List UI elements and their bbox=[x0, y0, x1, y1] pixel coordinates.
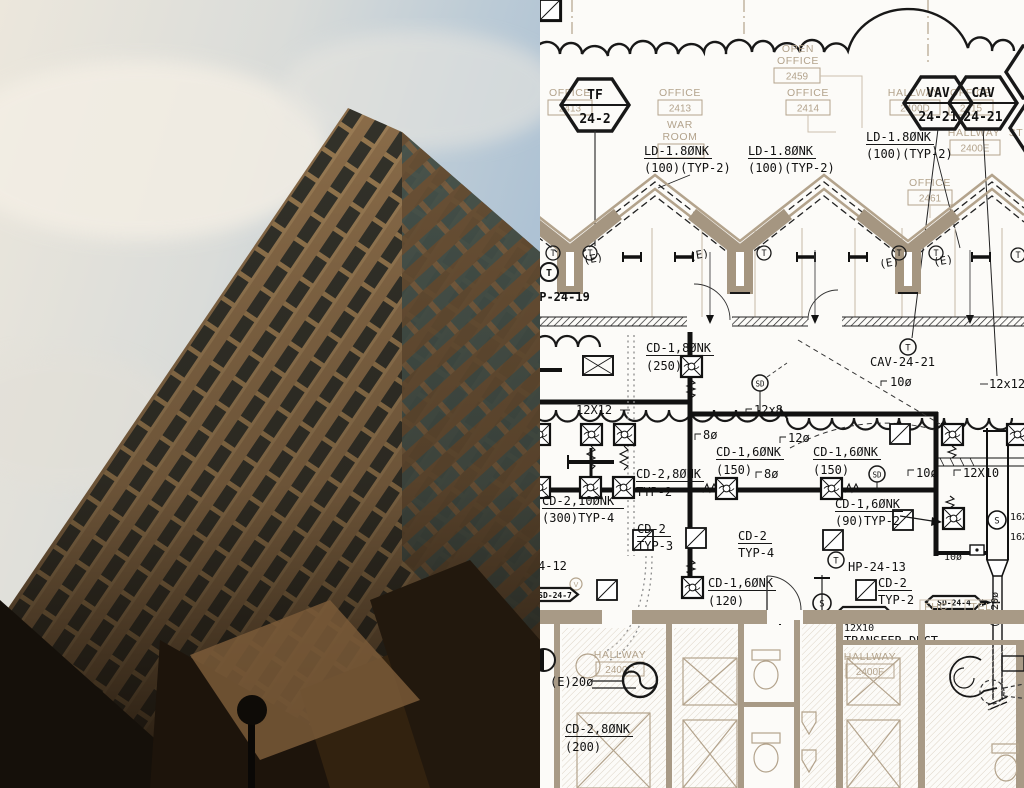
size-12x8: 12x8 bbox=[754, 403, 783, 417]
svg-text:2400E: 2400E bbox=[961, 144, 990, 155]
svg-text:TYP-2: TYP-2 bbox=[636, 485, 672, 499]
svg-text:SD: SD bbox=[755, 380, 765, 389]
svg-text:T: T bbox=[550, 249, 555, 259]
svg-text:T: T bbox=[546, 268, 552, 279]
partitions bbox=[652, 228, 1002, 317]
cd2-t3-label: CD-2 bbox=[637, 522, 666, 536]
svg-text:(100)(TYP-2): (100)(TYP-2) bbox=[748, 161, 835, 175]
cd2-t4-label: CD-2 bbox=[738, 529, 767, 543]
screenshot: OPEN OFFICE 2459 OFFICE 2413 OFFICE 2413… bbox=[0, 0, 1024, 788]
svg-text:2400F: 2400F bbox=[856, 667, 884, 678]
svg-text:(150): (150) bbox=[716, 463, 752, 477]
size-12x10-a: 12X10 bbox=[963, 466, 999, 480]
room-hallway-2400c: HALLWAY bbox=[594, 649, 646, 661]
size-8-a: 8ø bbox=[703, 428, 717, 442]
lamp-head bbox=[237, 695, 267, 725]
svg-text:(120): (120) bbox=[708, 594, 744, 608]
svg-text:OFFICE: OFFICE bbox=[777, 55, 819, 67]
cd28-200-label: CD-2,8ØNK bbox=[565, 722, 631, 736]
revision-cloud-top bbox=[540, 9, 1014, 56]
svg-text:2413: 2413 bbox=[669, 104, 692, 115]
svg-text:(300)TYP-4: (300)TYP-4 bbox=[542, 511, 614, 525]
room-war-room: OFFICE bbox=[659, 87, 701, 99]
size-12x12: 12X12 bbox=[576, 403, 612, 417]
svg-text:CAV: CAV bbox=[971, 86, 995, 101]
svg-text:24-2: 24-2 bbox=[579, 112, 610, 127]
svg-text:(E): (E) bbox=[688, 247, 710, 263]
tag-cav: CAV 24-21 bbox=[949, 77, 1017, 129]
hvac-plan-drawing: OPEN OFFICE 2459 OFFICE 2413 OFFICE 2413… bbox=[540, 0, 1024, 788]
size-12x10-b: 12X10 bbox=[844, 623, 874, 634]
e20-horizontal: (E)20ø bbox=[550, 675, 593, 689]
cd2-t2-label: CD-2 bbox=[878, 576, 907, 590]
cd28-t2-label: CD-2,8ØNK bbox=[636, 467, 702, 481]
cd16-90-label: CD-1,6ØNK bbox=[835, 497, 901, 511]
svg-text:T: T bbox=[761, 249, 766, 259]
ld-label-1: LD-1.8ØNK bbox=[644, 144, 710, 158]
room-office-2414: OFFICE bbox=[787, 87, 829, 99]
size-16x-a: 16X bbox=[1010, 512, 1024, 523]
size-12x12-b: 12x12 bbox=[989, 377, 1024, 391]
svg-text:(E): (E) bbox=[932, 253, 954, 269]
size-10-b: 10ø bbox=[916, 466, 938, 480]
svg-text:T: T bbox=[833, 557, 839, 567]
partial-hp-label: 4-12 bbox=[540, 559, 567, 573]
svg-text:(100)(TYP-2): (100)(TYP-2) bbox=[644, 161, 731, 175]
svg-text:24-21: 24-21 bbox=[918, 110, 957, 125]
inline-fan-box bbox=[583, 356, 613, 375]
svg-text:TYP-4: TYP-4 bbox=[738, 546, 774, 560]
svg-text:TF: TF bbox=[587, 88, 603, 103]
hp-24-13-label: HP-24-13 bbox=[848, 560, 906, 574]
size-16x-b: 16X bbox=[1010, 532, 1024, 543]
hvac-plan-art: OPEN OFFICE 2459 OFFICE 2413 OFFICE 2413… bbox=[540, 0, 1024, 788]
size-10-c: 10ø bbox=[944, 552, 962, 563]
room-open-office: OPEN bbox=[782, 43, 814, 55]
svg-text:VAV: VAV bbox=[926, 86, 950, 101]
svg-text:S: S bbox=[819, 600, 824, 610]
svg-text:(90)TYP-2: (90)TYP-2 bbox=[835, 514, 900, 528]
svg-text:TYP-2: TYP-2 bbox=[878, 593, 914, 607]
room-hallway-2400f: HALLWAY bbox=[844, 651, 896, 663]
svg-text:V: V bbox=[574, 582, 579, 589]
svg-text:2459: 2459 bbox=[786, 72, 809, 83]
cd210-label: CD-2,10ØNK bbox=[542, 494, 615, 508]
grid-lines bbox=[572, 0, 928, 64]
building-photo bbox=[0, 0, 540, 788]
size-10-a: 10ø bbox=[890, 375, 912, 389]
svg-text:(200): (200) bbox=[565, 740, 601, 754]
cd16-150-right: CD-1,6ØNK bbox=[813, 445, 879, 459]
svg-text:(100)(TYP-2): (100)(TYP-2) bbox=[866, 147, 953, 161]
svg-text:2414: 2414 bbox=[797, 104, 820, 115]
size-8-b: 8ø bbox=[764, 467, 778, 481]
svg-text:TYP-3: TYP-3 bbox=[637, 539, 673, 553]
hp-24-19-label: HP-24-19 bbox=[540, 290, 590, 304]
corridor-wall bbox=[540, 284, 1024, 326]
svg-text:ROOM: ROOM bbox=[662, 131, 697, 143]
cd16-150-left: CD-1,6ØNK bbox=[716, 445, 782, 459]
svg-text:T: T bbox=[905, 344, 911, 354]
ld-label-3: LD-1.8ØNK bbox=[866, 130, 932, 144]
size-12: 12ø bbox=[788, 431, 810, 445]
cav-24-21-label: CAV-24-21 bbox=[870, 355, 935, 369]
bottom-plan: HALLWAY 2400C HALLWAY 2400F (E)20ø CD-2,… bbox=[540, 576, 1024, 788]
svg-text:(250): (250) bbox=[646, 359, 682, 373]
cd18-label: CD-1,8ØNK bbox=[646, 341, 712, 355]
ceiling-symbols: T T T T T T (E) (E) (E) (E) bbox=[540, 246, 1024, 324]
svg-text:24-21: 24-21 bbox=[963, 110, 1002, 125]
svg-text:(150): (150) bbox=[813, 463, 849, 477]
svg-text:T: T bbox=[1015, 251, 1020, 261]
building-photo-art bbox=[0, 0, 540, 788]
door-arc bbox=[694, 284, 730, 320]
svg-text:(E): (E) bbox=[582, 251, 604, 267]
s-damper-label: S bbox=[994, 517, 999, 527]
svg-text:SD: SD bbox=[872, 471, 882, 480]
svg-text:SD-24-7: SD-24-7 bbox=[540, 591, 572, 600]
ld-label-2: LD-1.8ØNK bbox=[748, 144, 814, 158]
svg-text:WAR: WAR bbox=[667, 119, 693, 131]
cd16-120-label: CD-1,6ØNK bbox=[708, 576, 774, 590]
